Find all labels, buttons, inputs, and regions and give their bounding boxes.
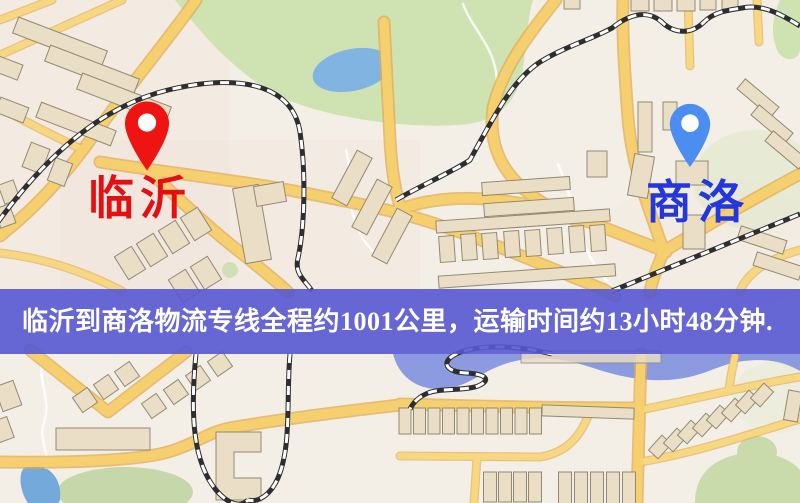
destination-label: 商洛 — [646, 180, 750, 226]
origin-pin-icon — [124, 100, 170, 172]
destination-marker — [668, 103, 712, 168]
map: 临沂 商洛 临沂到商洛物流专线全程约1001公里，运输时间约13小时48分钟. — [0, 0, 800, 503]
route-info-text: 临沂到商洛物流专线全程约1001公里，运输时间约13小时48分钟. — [0, 289, 800, 354]
route-info-banner: 临沂到商洛物流专线全程约1001公里，运输时间约13小时48分钟. — [0, 289, 800, 354]
origin-label: 临沂 — [88, 176, 192, 222]
destination-pin-icon — [668, 103, 712, 168]
map-background — [0, 0, 800, 503]
origin-marker — [124, 100, 170, 172]
